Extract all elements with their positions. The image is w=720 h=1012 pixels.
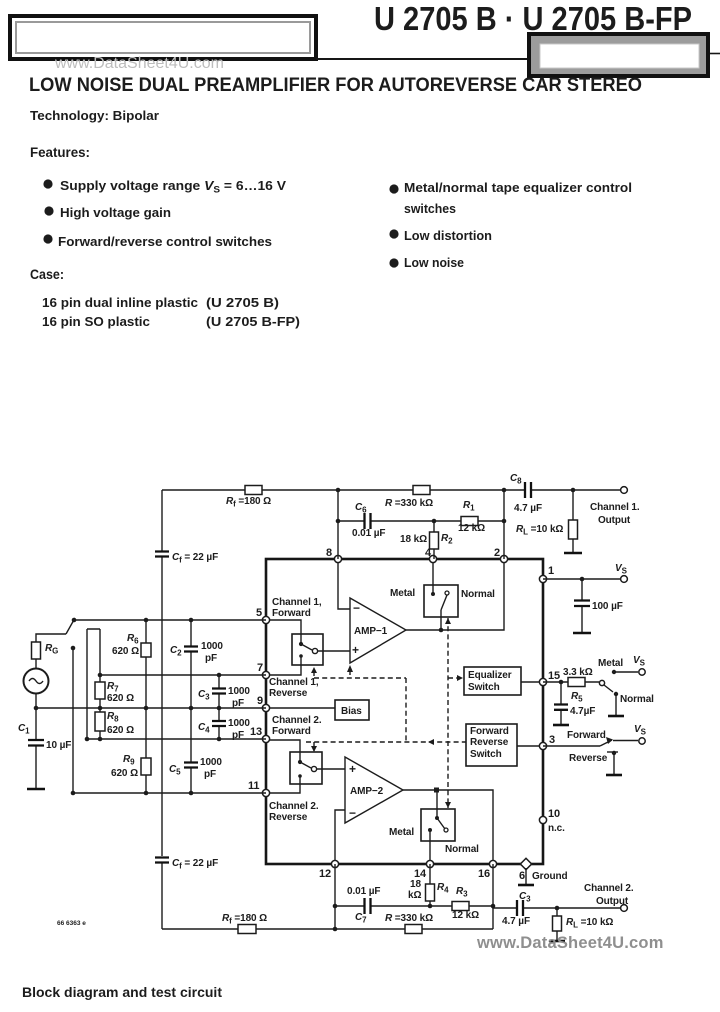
- svg-text:18: 18: [410, 879, 421, 890]
- svg-text:High voltage gain: High voltage gain: [60, 205, 171, 220]
- svg-text:Output: Output: [598, 515, 631, 526]
- svg-text:www.DataSheet4U.com: www.DataSheet4U.com: [476, 934, 664, 952]
- svg-text:12: 12: [319, 868, 331, 880]
- svg-text:(U 2705 B-FP): (U 2705 B-FP): [206, 314, 300, 329]
- svg-text:Reverse: Reverse: [470, 737, 509, 748]
- svg-text:100 µF: 100 µF: [592, 601, 623, 612]
- svg-text:pF: pF: [205, 653, 217, 664]
- svg-text:Normal: Normal: [461, 589, 495, 600]
- svg-text:−: −: [349, 806, 356, 820]
- svg-text:Forward: Forward: [272, 726, 311, 737]
- svg-text:620 Ω: 620 Ω: [111, 768, 138, 779]
- svg-text:11: 11: [248, 780, 259, 792]
- svg-text:Metal/normal tape equalizer co: Metal/normal tape equalizer control: [404, 180, 632, 195]
- svg-text:10: 10: [548, 808, 560, 820]
- svg-text:www.DataSheet4U.com: www.DataSheet4U.com: [54, 55, 224, 72]
- svg-text:Metal: Metal: [389, 827, 414, 838]
- svg-text:0.01 µF: 0.01 µF: [352, 528, 385, 539]
- svg-text:Equalizer: Equalizer: [468, 670, 512, 681]
- svg-text:9: 9: [257, 695, 263, 707]
- svg-text:13: 13: [250, 726, 262, 738]
- svg-text:620 Ω: 620 Ω: [107, 693, 134, 704]
- svg-text:Reverse: Reverse: [269, 812, 308, 823]
- svg-text:5: 5: [256, 607, 262, 619]
- svg-text:Channel 2.: Channel 2.: [584, 883, 634, 894]
- svg-text:Cf = 22 µF: Cf = 22 µF: [172, 858, 218, 871]
- svg-text:Switch: Switch: [468, 682, 500, 693]
- svg-text:R =330 kΩ: R =330 kΩ: [385, 913, 433, 924]
- svg-text:AMP−2: AMP−2: [350, 786, 384, 797]
- svg-text:Output: Output: [596, 896, 629, 907]
- svg-text:Channel 2.: Channel 2.: [269, 801, 319, 812]
- svg-text:Bias: Bias: [341, 706, 362, 717]
- svg-text:Low noise: Low noise: [404, 255, 464, 270]
- svg-text:LOW NOISE DUAL PREAMPLIFIER FO: LOW NOISE DUAL PREAMPLIFIER FOR AUTOREVE…: [29, 75, 642, 96]
- svg-text:Metal: Metal: [598, 658, 623, 669]
- svg-text:RL =10 kΩ: RL =10 kΩ: [566, 917, 613, 930]
- svg-text:kΩ: kΩ: [408, 890, 421, 901]
- svg-text:Forward: Forward: [567, 730, 606, 741]
- svg-text:(U 2705 B): (U 2705 B): [206, 295, 279, 310]
- svg-text:Forward/reverse control switch: Forward/reverse control switches: [58, 234, 272, 249]
- svg-text:15: 15: [548, 670, 560, 682]
- svg-text:Rf =180 Ω: Rf =180 Ω: [226, 496, 271, 509]
- svg-text:AMP−1: AMP−1: [354, 626, 388, 637]
- svg-text:1000: 1000: [201, 641, 223, 652]
- svg-text:Rf =180 Ω: Rf =180 Ω: [222, 913, 267, 926]
- svg-text:620 Ω: 620 Ω: [112, 646, 139, 657]
- svg-text:1000: 1000: [228, 686, 250, 697]
- svg-text:16: 16: [478, 868, 490, 880]
- svg-text:U 2705 B · U 2705 B-FP: U 2705 B · U 2705 B-FP: [374, 0, 692, 37]
- svg-text:RL =10 kΩ: RL =10 kΩ: [516, 524, 563, 537]
- svg-text:Forward: Forward: [272, 608, 311, 619]
- svg-text:pF: pF: [232, 698, 244, 709]
- svg-text:−: −: [353, 601, 360, 615]
- svg-text:18 kΩ: 18 kΩ: [400, 534, 427, 545]
- svg-text:Features:: Features:: [30, 145, 90, 160]
- svg-text:Case:: Case:: [30, 267, 64, 282]
- svg-text:12 kΩ: 12 kΩ: [452, 910, 479, 921]
- svg-text:n.c.: n.c.: [548, 823, 565, 834]
- svg-text:Forward: Forward: [470, 726, 509, 737]
- svg-text:3: 3: [549, 734, 555, 746]
- svg-text:+: +: [349, 762, 356, 776]
- svg-text:Technology: Bipolar: Technology: Bipolar: [30, 108, 159, 123]
- svg-text:6: 6: [519, 870, 525, 882]
- svg-text:pF: pF: [232, 730, 244, 741]
- svg-text:Channel 1.: Channel 1.: [590, 502, 640, 513]
- svg-text:1000: 1000: [228, 718, 250, 729]
- svg-text:R =330 kΩ: R =330 kΩ: [385, 498, 433, 509]
- svg-text:Channel 1,: Channel 1,: [272, 597, 322, 608]
- svg-text:16 pin dual inline plastic: 16 pin dual inline plastic: [42, 295, 198, 310]
- svg-text:2: 2: [494, 547, 500, 559]
- svg-text:4.7 µF: 4.7 µF: [514, 503, 542, 514]
- svg-text:8: 8: [326, 547, 332, 559]
- svg-text:Reverse: Reverse: [569, 753, 608, 764]
- svg-text:1000: 1000: [200, 757, 222, 768]
- svg-text:66 6363 e: 66 6363 e: [57, 920, 86, 927]
- svg-text:Normal: Normal: [620, 694, 654, 705]
- svg-text:0.01 µF: 0.01 µF: [347, 886, 380, 897]
- svg-text:620 Ω: 620 Ω: [107, 725, 134, 736]
- svg-text:12 kΩ: 12 kΩ: [458, 523, 485, 534]
- svg-text:Cf = 22 µF: Cf = 22 µF: [172, 552, 218, 565]
- svg-text:10 µF: 10 µF: [46, 740, 71, 751]
- svg-text:Switch: Switch: [470, 749, 502, 760]
- svg-text:7: 7: [257, 662, 263, 674]
- svg-text:Reverse: Reverse: [269, 688, 308, 699]
- svg-text:pF: pF: [204, 769, 216, 780]
- svg-text:Metal: Metal: [390, 588, 415, 599]
- svg-text:Block diagram and test circuit: Block diagram and test circuit: [22, 985, 223, 1000]
- svg-text:Normal: Normal: [445, 844, 479, 855]
- svg-text:3.3 kΩ: 3.3 kΩ: [563, 667, 593, 678]
- svg-text:16 pin SO plastic: 16 pin SO plastic: [42, 314, 150, 329]
- svg-text:Supply voltage range VS = 6…16: Supply voltage range VS = 6…16 V: [60, 178, 286, 196]
- svg-text:Ground: Ground: [532, 871, 568, 882]
- svg-text:switches: switches: [404, 201, 456, 216]
- svg-text:1: 1: [548, 565, 554, 577]
- svg-text:Channel 1,: Channel 1,: [269, 677, 319, 688]
- svg-text:+: +: [352, 643, 359, 657]
- svg-text:Channel 2.: Channel 2.: [272, 715, 322, 726]
- svg-text:Low distortion: Low distortion: [404, 228, 492, 243]
- svg-text:4.7 µF: 4.7 µF: [502, 916, 530, 927]
- svg-text:4.7µF: 4.7µF: [570, 706, 595, 717]
